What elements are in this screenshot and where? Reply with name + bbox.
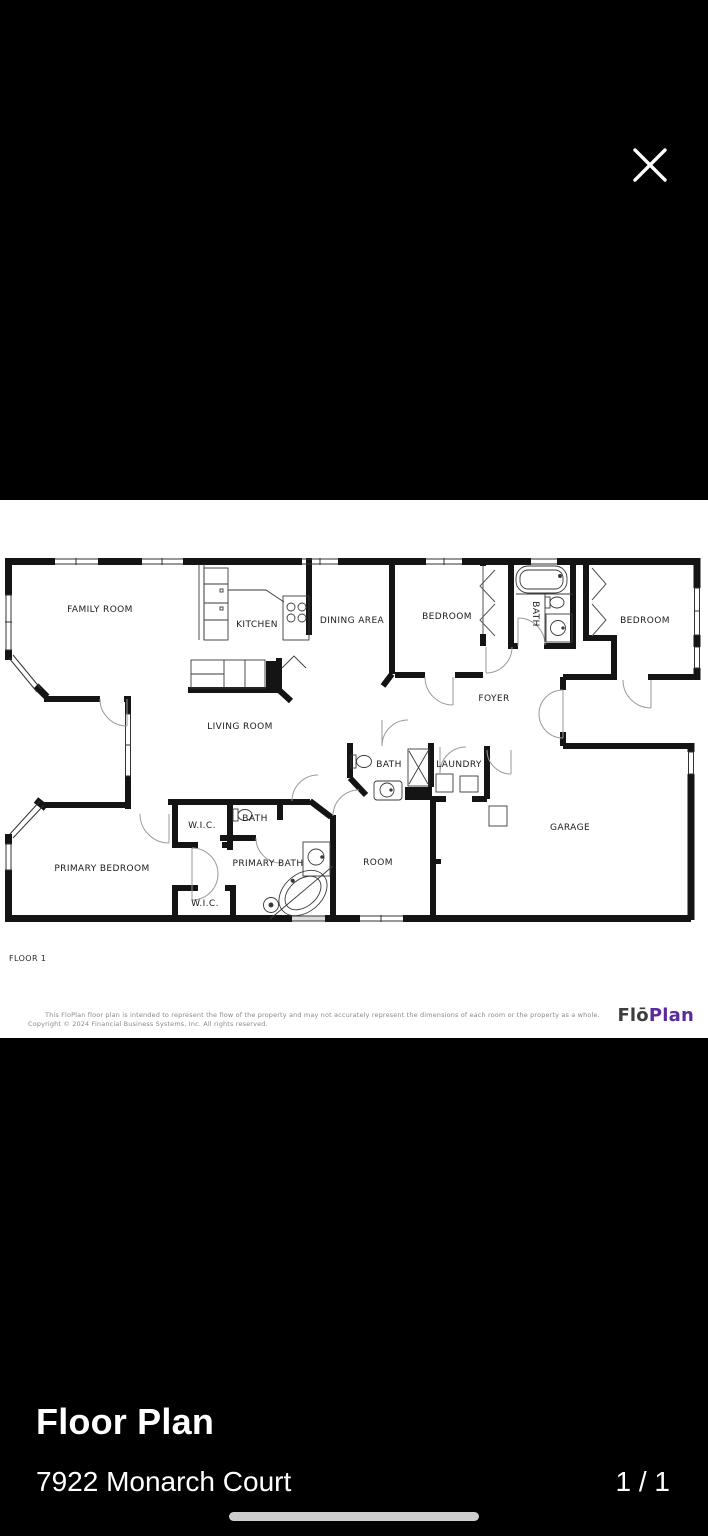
- floplan-logo-plan: Plan: [649, 1005, 694, 1026]
- label-garage: GARAGE: [550, 823, 590, 833]
- close-button[interactable]: [626, 141, 674, 189]
- label-bedroom-left: BEDROOM: [422, 612, 472, 622]
- floplan-logo-flo: Flō: [617, 1005, 648, 1026]
- label-wic-top: W.I.C.: [188, 821, 216, 831]
- close-icon: [626, 141, 674, 189]
- disclaimer-line2: Copyright © 2024 Financial Business Syst…: [28, 1020, 688, 1029]
- floor-label: FLOOR 1: [9, 954, 46, 963]
- label-primary-bedroom: PRIMARY BEDROOM: [54, 864, 149, 874]
- photo-viewer-screen: { "viewer": { "close_label": "close" }, …: [0, 0, 708, 1536]
- primary-bath-fixtures: [264, 842, 336, 925]
- label-foyer: FOYER: [478, 694, 509, 704]
- floorplan-drawing: FAMILY ROOM KITCHEN DINING AREA BEDROOM …: [0, 500, 708, 975]
- floorplan-image[interactable]: FAMILY ROOM KITCHEN DINING AREA BEDROOM …: [0, 500, 708, 1038]
- garage-post: [436, 859, 441, 864]
- label-living-room: LIVING ROOM: [207, 722, 273, 732]
- label-primary-bath: PRIMARY BATH: [233, 859, 304, 869]
- bath-top-fixtures: [516, 566, 573, 642]
- label-room: ROOM: [363, 858, 393, 868]
- label-bath-top: BATH: [530, 601, 540, 627]
- laundry-fixtures: [436, 774, 507, 826]
- disclaimer-line1: This FloPlan floor plan is intended to r…: [28, 1011, 688, 1020]
- page-title: Floor Plan: [36, 1401, 214, 1443]
- label-family-room: FAMILY ROOM: [67, 605, 133, 615]
- label-kitchen: KITCHEN: [236, 620, 278, 630]
- floplan-logo: FlōPlan: [617, 1005, 694, 1026]
- label-wic-bottom: W.I.C.: [191, 899, 219, 909]
- home-indicator[interactable]: [229, 1512, 479, 1521]
- page-indicator: 1 / 1: [616, 1466, 670, 1498]
- label-dining-area: DINING AREA: [320, 616, 385, 626]
- label-bath-small: BATH: [242, 814, 268, 824]
- address-subtitle: 7922 Monarch Court: [36, 1466, 291, 1498]
- label-bath-mid: BATH: [376, 760, 402, 770]
- label-laundry: LAUNDRY: [436, 760, 482, 770]
- disclaimer: This FloPlan floor plan is intended to r…: [28, 1011, 688, 1029]
- label-bedroom-right: BEDROOM: [620, 616, 670, 626]
